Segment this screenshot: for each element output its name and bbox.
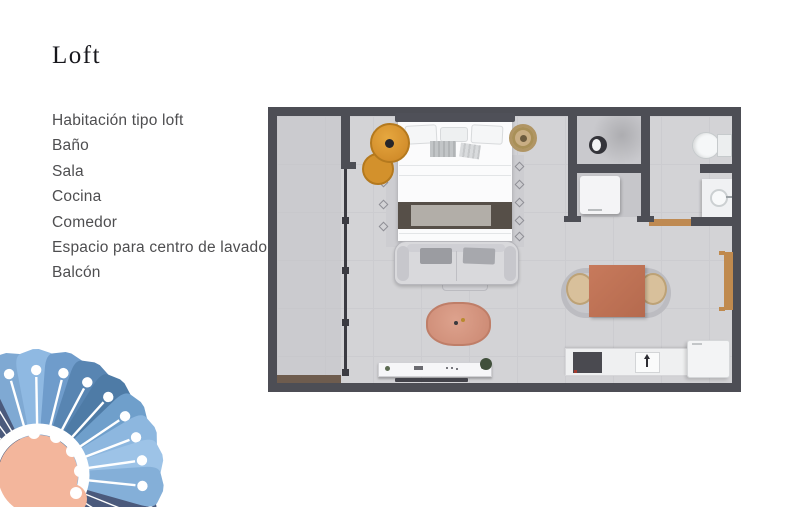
bathroom-wall: [641, 116, 650, 222]
dining-table: [589, 265, 645, 317]
bathroom-wall: [637, 216, 654, 222]
glass-post: [342, 319, 349, 326]
feature-item-lavado: Espacio para centro de lavado: [52, 235, 267, 260]
window-frame-cap: [719, 307, 725, 311]
rattan-side-table: [509, 124, 537, 152]
shower-head-icon: [589, 136, 607, 154]
plant-small: [385, 366, 390, 371]
bathroom-wall: [568, 164, 650, 173]
bed-throw-blanket-center: [411, 205, 491, 226]
feature-item-bano: Baño: [52, 133, 267, 158]
duvet-fold: [399, 165, 511, 166]
pillow: [440, 127, 468, 142]
feature-item-comedor: Comedor: [52, 210, 267, 235]
duvet-fold: [399, 175, 511, 176]
table-decor: [461, 318, 465, 322]
washing-machine: [580, 176, 620, 214]
shower: [577, 116, 641, 164]
table-decor: [454, 321, 458, 325]
sofa-arm: [504, 246, 516, 281]
glass-post: [342, 369, 349, 376]
sofa-seam: [456, 251, 457, 281]
tv: [395, 378, 468, 382]
bathroom-wall: [564, 216, 581, 222]
feature-item-cocina: Cocina: [52, 184, 267, 209]
feature-item-balcon: Balcón: [52, 260, 267, 285]
brochure-page: Loft Habitación tipo loft Baño Sala Coci…: [0, 0, 798, 507]
page-title: Loft: [52, 42, 101, 70]
fan-center: [0, 427, 87, 507]
bathroom-faucet: [726, 196, 732, 198]
toilet: [692, 132, 720, 159]
sofa: [394, 241, 519, 289]
console-decor: [414, 366, 423, 370]
pillow: [471, 124, 504, 145]
wall-bottom: [268, 383, 741, 392]
glass-post: [342, 217, 349, 224]
wall-right: [732, 107, 741, 392]
bed-cushion: [459, 143, 481, 160]
balcony-rail: [277, 375, 341, 383]
console-decor: [446, 367, 448, 369]
headboard: [395, 113, 515, 122]
media-console: [378, 362, 492, 377]
duvet-fold: [399, 233, 511, 234]
partition-wall: [341, 116, 350, 166]
coffee-table: [426, 302, 491, 346]
cooktop-knob: [574, 370, 577, 373]
feature-item-sala: Sala: [52, 159, 267, 184]
kitchen-faucet-icon: [646, 358, 648, 367]
cooktop: [573, 352, 602, 373]
bathroom-wall: [700, 164, 732, 173]
decorative-fan-graphic: [0, 325, 210, 507]
sofa-arm: [397, 246, 409, 281]
stool: [370, 123, 410, 163]
sofa-cushion: [463, 247, 496, 264]
floorplan: [268, 107, 741, 392]
refrigerator: [687, 340, 730, 378]
window-frame-cap: [719, 251, 725, 255]
plant: [480, 358, 492, 370]
glass-post: [342, 267, 349, 274]
partition-wall-stub: [341, 162, 356, 169]
feature-item-loft: Habitación tipo loft: [52, 108, 267, 133]
window-frame: [724, 252, 733, 310]
toilet-tank: [717, 134, 732, 157]
bathroom-sink: [710, 189, 728, 207]
bathroom-wall: [691, 217, 732, 226]
wood-threshold: [649, 219, 691, 226]
sofa-cushion: [420, 248, 452, 264]
bed-cushion: [430, 141, 456, 157]
feature-list: Habitación tipo loft Baño Sala Cocina Co…: [52, 108, 267, 286]
wall-left: [268, 107, 277, 392]
